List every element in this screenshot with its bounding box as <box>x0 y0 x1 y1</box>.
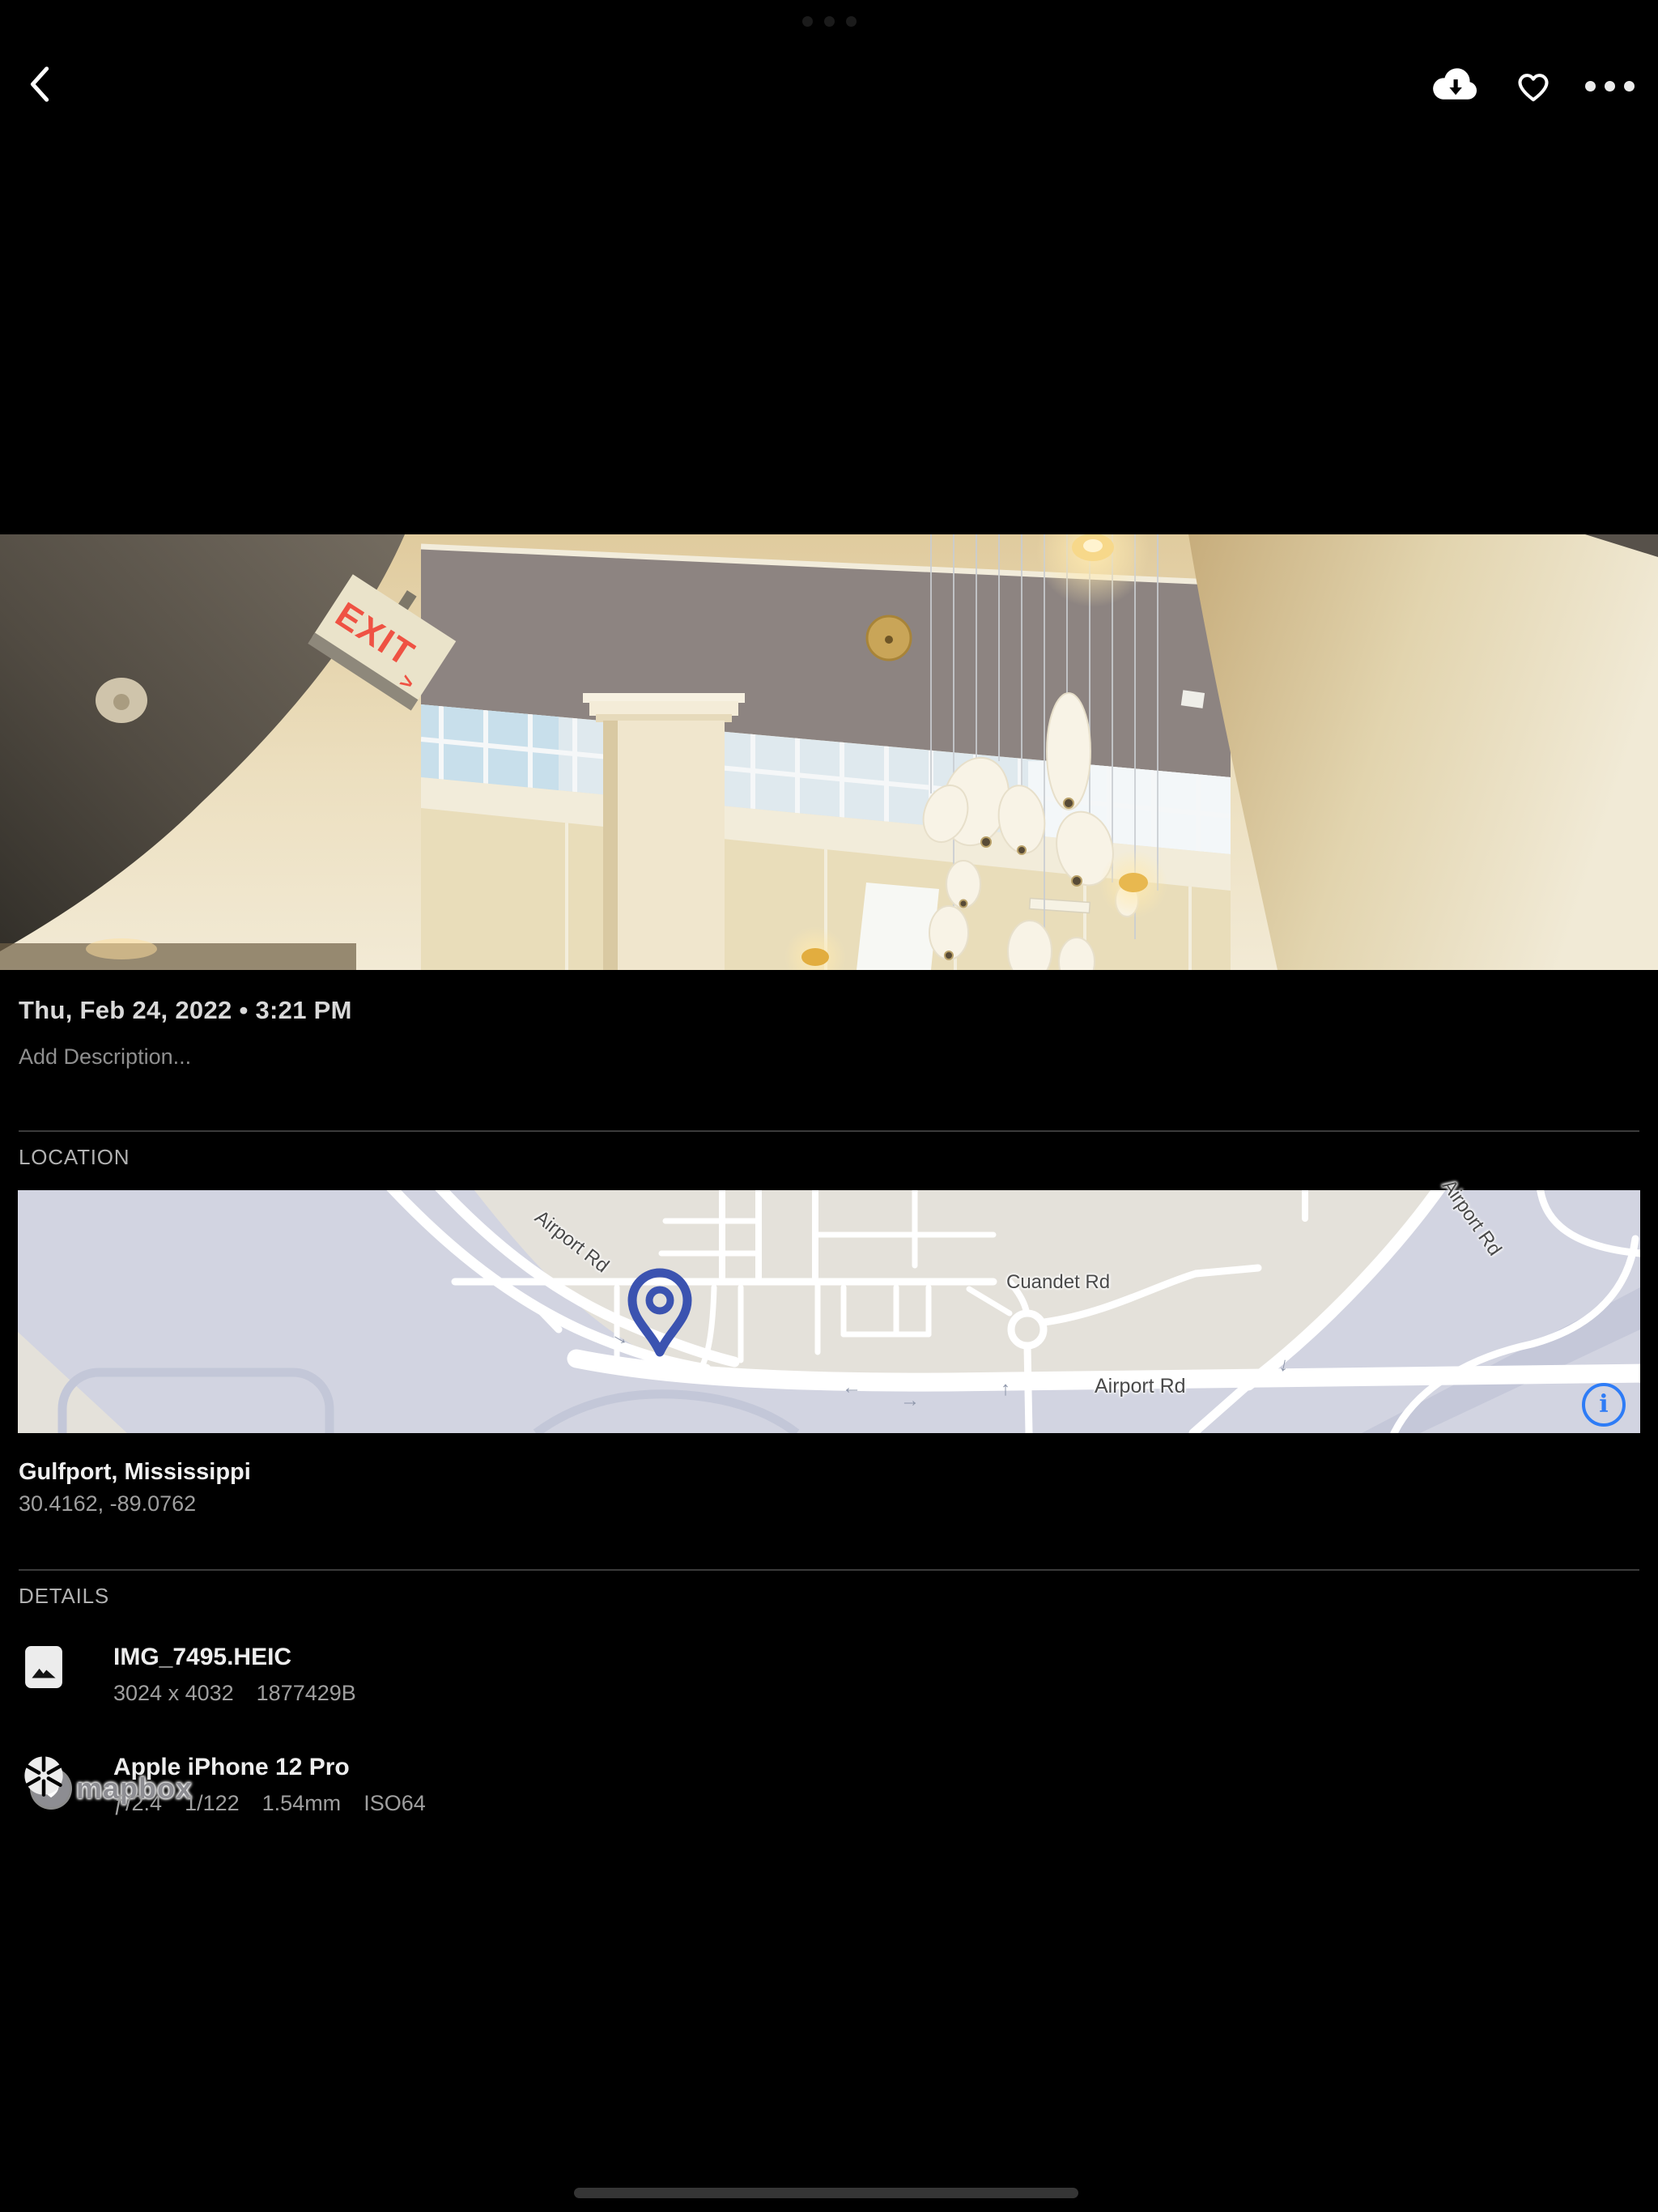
download-button[interactable] <box>1426 57 1485 115</box>
file-meta: 3024 x 40321877429B <box>113 1681 379 1706</box>
place-name: Gulfport, Mississippi <box>19 1459 251 1486</box>
location-map[interactable] <box>18 1190 1640 1433</box>
image-file-icon <box>21 1644 66 1706</box>
description-field[interactable]: Add Description... <box>19 1044 191 1070</box>
aperture-icon <box>21 1754 66 1816</box>
photo-datetime: Thu, Feb 24, 2022 • 3:21 PM <box>19 996 352 1025</box>
location-section-label: LOCATION <box>19 1145 130 1170</box>
camera-iso: ISO64 <box>363 1791 426 1815</box>
camera-model: Apple iPhone 12 Pro <box>113 1754 449 1781</box>
camera-aperture: ƒ/2.4 <box>113 1791 162 1815</box>
photo-viewer[interactable]: EXIT > <box>0 534 1658 970</box>
favorite-button[interactable] <box>1504 57 1562 115</box>
file-detail-row: IMG_7495.HEIC 3024 x 40321877429B <box>21 1644 379 1706</box>
handle-dot <box>824 16 835 27</box>
file-name: IMG_7495.HEIC <box>113 1644 379 1671</box>
camera-detail-row: Apple iPhone 12 Pro ƒ/2.41/1221.54mmISO6… <box>21 1754 449 1816</box>
one-way-arrow: → <box>900 1389 920 1412</box>
ellipsis-icon <box>1585 81 1635 91</box>
coordinates: 30.4162, -89.0762 <box>19 1491 196 1516</box>
section-divider <box>19 1569 1639 1571</box>
system-handle-dots <box>0 16 1658 27</box>
road-label-cuandet-rd: Cuandet Rd <box>1006 1271 1110 1294</box>
section-divider <box>19 1130 1639 1132</box>
handle-dot <box>846 16 857 27</box>
photo-detail-screen: EXIT > <box>0 0 1658 2212</box>
file-size: 1877429B <box>257 1681 356 1705</box>
map-info-button[interactable]: i <box>1582 1383 1626 1427</box>
file-dimensions: 3024 x 4032 <box>113 1681 234 1705</box>
details-section-label: DETAILS <box>19 1584 109 1609</box>
one-way-arrow: ← <box>842 1376 861 1399</box>
camera-shutter: 1/122 <box>185 1791 240 1815</box>
handle-dot <box>802 16 813 27</box>
home-indicator[interactable] <box>574 2188 1078 2198</box>
road-label-airport-rd-lower: Airport Rd <box>1095 1375 1186 1398</box>
heart-icon <box>1511 63 1556 109</box>
cloud-download-icon <box>1430 62 1482 111</box>
one-way-arrow: ↑ <box>1001 1378 1010 1401</box>
info-icon: i <box>1599 1393 1608 1417</box>
camera-focal-length: 1.54mm <box>262 1791 342 1815</box>
more-options-button[interactable] <box>1580 57 1639 115</box>
back-button[interactable] <box>11 57 70 115</box>
camera-meta: ƒ/2.41/1221.54mmISO64 <box>113 1791 449 1816</box>
chevron-left-icon <box>22 62 59 111</box>
